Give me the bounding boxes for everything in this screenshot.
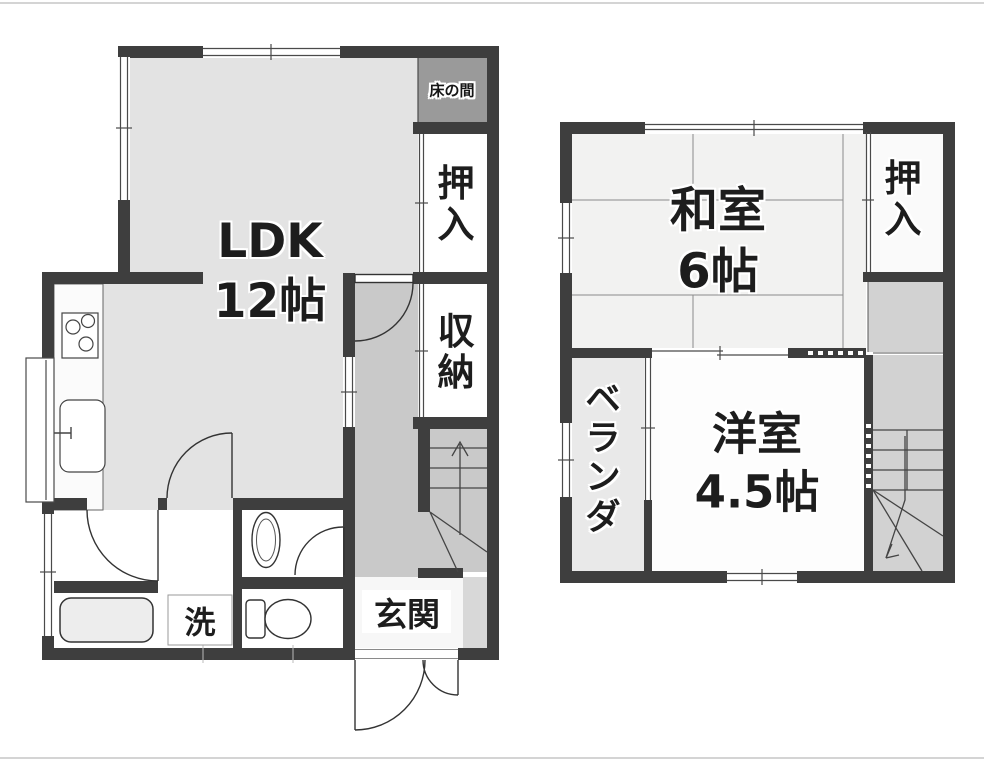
window-bottom-2f: [727, 569, 797, 585]
ldk-size: 12帖: [214, 272, 326, 332]
youshitsu-name: 洋室: [695, 405, 820, 463]
label-genkan: 玄関: [374, 588, 440, 636]
label-youshitsu: 洋室 4.5帖: [695, 405, 820, 520]
label-ldk: LDK 12帖: [214, 212, 326, 332]
label-oshiire-1f: 押 入: [438, 163, 475, 246]
window-top-2f: [645, 120, 863, 136]
label-laundry: 洗: [185, 598, 216, 643]
window-top: [203, 44, 340, 60]
label-oshiire-2f: 押 入: [885, 158, 922, 241]
bathtub-icon: [60, 598, 153, 642]
youshitsu-size: 4.5帖: [695, 463, 820, 521]
label-tokonoma: 床の間: [429, 80, 474, 101]
label-storage-1f: 収 納: [438, 311, 475, 394]
floor-plan-drawing: [0, 0, 984, 762]
bay-window: [26, 358, 54, 502]
sliding-door-corridor: [341, 357, 357, 427]
window-left-upper-2f: [558, 203, 574, 273]
window-left-upper: [116, 57, 132, 200]
ldk-name: LDK: [214, 212, 326, 272]
window-left-lower-2f: [558, 423, 574, 497]
label-veranda: ベ ラ ン ダ: [585, 381, 620, 538]
kitchen-counter: [50, 284, 105, 510]
stove-icon: [62, 313, 98, 358]
sliding-door-washitsu: [652, 346, 788, 360]
entrance-double-door: [355, 660, 458, 730]
washitsu-name: 和室: [670, 181, 766, 242]
washitsu-size: 6帖: [670, 242, 766, 303]
toilet-icon: [246, 600, 311, 639]
door-toilet: [295, 527, 344, 575]
window-left-lower: [40, 514, 56, 636]
label-washitsu: 和室 6帖: [670, 181, 766, 304]
washbasin-icon: [252, 513, 280, 568]
floor-plan-page: LDK 12帖 床の間 押 入 収 納 玄関 洗 和室 6帖 押 入 洋室 4.…: [0, 0, 984, 762]
door-washroom: [87, 510, 158, 581]
